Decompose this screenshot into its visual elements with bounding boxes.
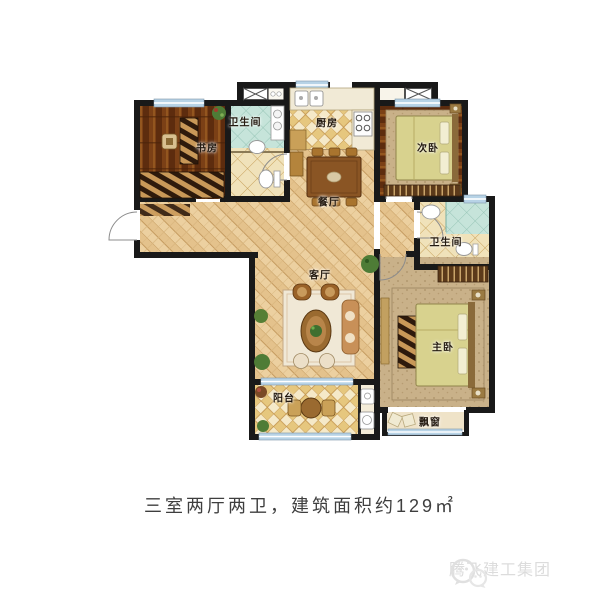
room-label-study: 书房 [196, 140, 218, 155]
room-label-master: 主卧 [432, 339, 454, 354]
room-label-bathroom-top: 卫生间 [229, 114, 262, 129]
plan-caption: 三室两厅两卫，建筑面积约129㎡ [0, 492, 600, 518]
room-label-living: 客厅 [309, 267, 331, 282]
floorplan-page: 书房 卫生间 厨房 次卧 餐厅 客厅 卫生间 主卧 阳台 飘窗 三室两厅两卫，建… [0, 0, 600, 600]
window-balcony [259, 433, 351, 440]
window-bay [388, 429, 462, 435]
room-label-bay-window: 飘窗 [419, 414, 441, 429]
chat-bubbles-icon [449, 556, 489, 592]
entry-door-arc [109, 212, 137, 240]
room-label-dining: 餐厅 [318, 194, 340, 209]
window-study [154, 99, 204, 107]
window-bedroom2 [395, 99, 440, 107]
window-living-balcony [261, 378, 353, 385]
room-label-bathroom-right: 卫生间 [430, 234, 463, 249]
room-label-kitchen: 厨房 [316, 115, 338, 130]
room-label-bedroom2: 次卧 [417, 140, 439, 155]
room-label-balcony: 阳台 [273, 390, 295, 405]
window-bathroom-right [464, 195, 486, 203]
watermark: 腾飞建工集团 [449, 556, 551, 580]
